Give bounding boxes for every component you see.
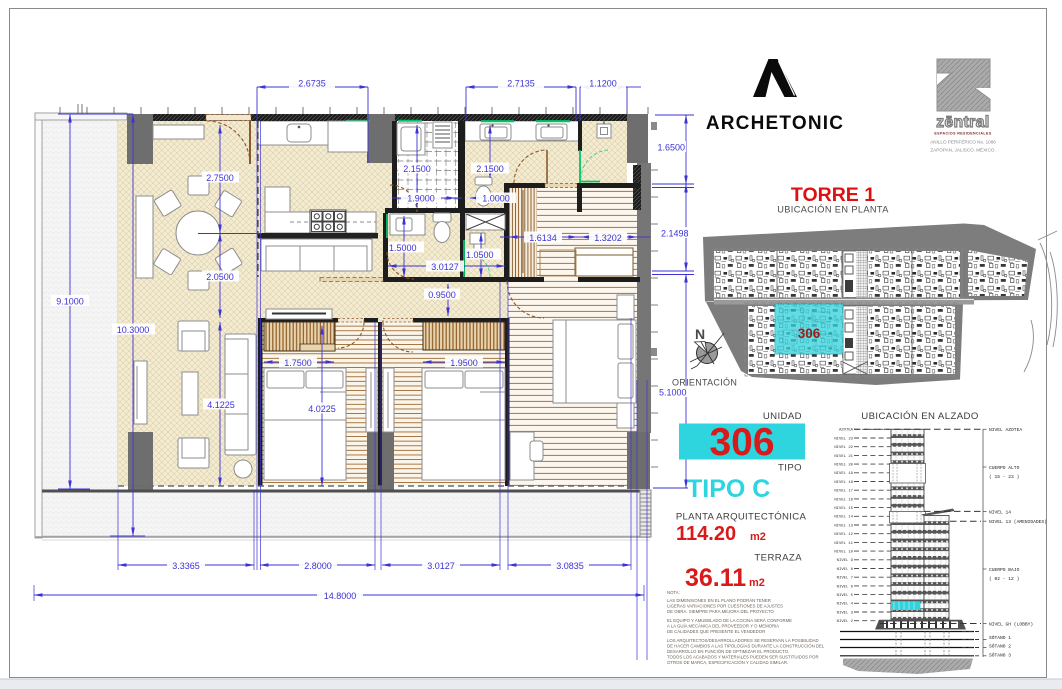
svg-text:LAS DIMENSIONES EN EL PLANO PO: LAS DIMENSIONES EN EL PLANO PODRÁN TENER — [667, 598, 771, 603]
svg-text:NOTA:: NOTA: — [667, 590, 680, 595]
svg-text:1.9000: 1.9000 — [407, 194, 435, 204]
svg-text:AZOTEA: AZOTEA — [839, 429, 854, 433]
svg-text:NIVEL 12: NIVEL 12 — [834, 533, 853, 537]
svg-text:CUERPO BAJO: CUERPO BAJO — [989, 567, 1020, 573]
svg-text:2.1498: 2.1498 — [661, 229, 689, 239]
svg-text:2.1500: 2.1500 — [476, 164, 504, 174]
svg-text:UBICACIÓN EN PLANTA: UBICACIÓN EN PLANTA — [777, 205, 889, 215]
svg-text:NIVEL GH (LOBBY): NIVEL GH (LOBBY) — [989, 622, 1033, 628]
svg-text:2.0500: 2.0500 — [206, 272, 234, 282]
svg-text:m2: m2 — [749, 577, 765, 589]
svg-text:306: 306 — [709, 421, 774, 464]
svg-text:306: 306 — [798, 326, 821, 341]
svg-text:NIVEL 6: NIVEL 6 — [837, 585, 854, 589]
svg-text:DE HACER CAMBIOS A LAS TIPOLOG: DE HACER CAMBIOS A LAS TIPOLOGÍAS DURANT… — [667, 644, 825, 649]
svg-text:2.1500: 2.1500 — [403, 164, 431, 174]
svg-text:TERRAZA: TERRAZA — [754, 553, 802, 564]
svg-text:NIVEL 13 (AMENIDADES): NIVEL 13 (AMENIDADES) — [989, 519, 1047, 525]
svg-text:OTROS DE MARCA, ESPECIFICACIÓN: OTROS DE MARCA, ESPECIFICACIÓN Y CALIDAD… — [667, 660, 788, 665]
svg-text:3.3365: 3.3365 — [172, 561, 200, 571]
svg-text:NIVEL 16: NIVEL 16 — [834, 498, 853, 502]
svg-text:2.8000: 2.8000 — [304, 561, 332, 571]
svg-text:NIVEL 9: NIVEL 9 — [837, 559, 854, 563]
svg-text:N: N — [695, 326, 705, 342]
svg-text:( 02 - 12 ): ( 02 - 12 ) — [989, 576, 1019, 582]
svg-text:NIVEL 18: NIVEL 18 — [834, 481, 853, 485]
svg-text:NIVEL 5: NIVEL 5 — [837, 594, 854, 598]
svg-text:NIVEL 13: NIVEL 13 — [834, 524, 853, 528]
svg-text:NIVEL 11: NIVEL 11 — [834, 542, 853, 546]
svg-text:NIVEL AZOTEA: NIVEL AZOTEA — [989, 427, 1022, 433]
svg-text:1.6500: 1.6500 — [657, 143, 685, 153]
svg-text:NIVEL 22: NIVEL 22 — [834, 446, 853, 450]
svg-text:ANILLO PERIFÉRICO No. 1086: ANILLO PERIFÉRICO No. 1086 — [930, 139, 996, 145]
svg-text:5.1000: 5.1000 — [659, 388, 687, 398]
svg-text:3.0835: 3.0835 — [556, 561, 584, 571]
svg-text:4.1225: 4.1225 — [207, 400, 235, 410]
svg-text:3.0127: 3.0127 — [427, 561, 455, 571]
svg-text:zēntral: zēntral — [936, 114, 989, 131]
svg-text:DE CALIDADES QUE PRESENTE EL V: DE CALIDADES QUE PRESENTE EL VENDEDOR — [667, 629, 765, 634]
svg-text:NIVEL 4: NIVEL 4 — [837, 603, 854, 607]
svg-text:NIVEL 2: NIVEL 2 — [837, 620, 854, 624]
svg-text:LOS ARQUITECTOS/DESARROLLADORE: LOS ARQUITECTOS/DESARROLLADORES SE RESER… — [667, 638, 819, 643]
svg-text:NIVEL 21: NIVEL 21 — [834, 455, 853, 459]
svg-text:DE OBRA. SIEMPRE PARA MEJORA D: DE OBRA. SIEMPRE PARA MEJORA DEL PROYECT… — [667, 609, 775, 614]
svg-text:2.7135: 2.7135 — [507, 79, 535, 89]
svg-text:2.7500: 2.7500 — [206, 173, 234, 183]
svg-text:2.6735: 2.6735 — [298, 79, 326, 89]
svg-text:1.0500: 1.0500 — [466, 250, 494, 260]
svg-text:4.0225: 4.0225 — [308, 404, 336, 414]
svg-text:SÓTANO 1: SÓTANO 1 — [989, 634, 1011, 641]
svg-text:TODOS LOS ACABADOS Y MATERIALE: TODOS LOS ACABADOS Y MATERIALES PUEDEN S… — [667, 655, 819, 660]
svg-text:NIVEL 19: NIVEL 19 — [834, 472, 853, 476]
svg-text:NIVEL 10: NIVEL 10 — [834, 551, 853, 555]
svg-text:NIVEL 8: NIVEL 8 — [837, 568, 854, 572]
svg-text:1.0000: 1.0000 — [482, 194, 510, 204]
svg-text:ORIENTACIÓN: ORIENTACIÓN — [672, 378, 737, 388]
svg-text:10.3000: 10.3000 — [117, 325, 150, 335]
svg-text:36.11: 36.11 — [685, 564, 746, 592]
svg-text:LIGERAS VARIACIONES POR CUESTI: LIGERAS VARIACIONES POR CUESTIONES DE AJ… — [667, 604, 783, 609]
svg-text:ARCHETONIC: ARCHETONIC — [706, 113, 844, 134]
svg-text:SÓTANO 3: SÓTANO 3 — [989, 652, 1011, 659]
svg-text:9.1000: 9.1000 — [56, 297, 84, 307]
svg-text:NIVEL 15: NIVEL 15 — [834, 507, 853, 511]
svg-text:ESPACIOS RESIDENCIALES: ESPACIOS RESIDENCIALES — [934, 132, 991, 136]
svg-text:TORRE 1: TORRE 1 — [791, 184, 875, 206]
svg-text:1.7500: 1.7500 — [284, 358, 312, 368]
svg-text:A LA GUÍA MECÁNICA DEL PROVEED: A LA GUÍA MECÁNICA DEL PROVEEDOR Y O MEM… — [667, 624, 779, 629]
svg-text:0.9500: 0.9500 — [428, 290, 456, 300]
svg-text:NIVEL 3: NIVEL 3 — [837, 611, 854, 615]
svg-text:1.5000: 1.5000 — [389, 243, 417, 253]
svg-text:( 15 - 23 ): ( 15 - 23 ) — [989, 474, 1019, 480]
svg-text:DESARROLLO EN FUNCIÓN DE OPTIM: DESARROLLO EN FUNCIÓN DE OPTIMIZAR EL PR… — [667, 649, 789, 654]
svg-text:NIVEL 14: NIVEL 14 — [989, 509, 1011, 515]
svg-text:NIVEL 7: NIVEL 7 — [837, 577, 854, 581]
svg-text:3.0127: 3.0127 — [431, 262, 459, 272]
svg-text:1.1200: 1.1200 — [589, 79, 617, 89]
svg-text:TIPO: TIPO — [778, 463, 802, 474]
svg-text:114.20: 114.20 — [676, 523, 736, 545]
svg-text:PLANTA ARQUITECTÓNICA: PLANTA ARQUITECTÓNICA — [676, 512, 807, 523]
svg-text:NIVEL 14: NIVEL 14 — [834, 516, 853, 520]
svg-text:TIPO C: TIPO C — [687, 475, 770, 503]
svg-text:m2: m2 — [750, 531, 766, 543]
svg-text:NIVEL 17: NIVEL 17 — [834, 490, 853, 494]
svg-text:CUERPO ALTO: CUERPO ALTO — [989, 465, 1020, 471]
svg-text:1.6134: 1.6134 — [529, 233, 557, 243]
svg-text:UBICACIÓN EN ALZADO: UBICACIÓN EN ALZADO — [861, 411, 978, 422]
svg-text:NIVEL 20: NIVEL 20 — [834, 464, 853, 468]
svg-text:1.3202: 1.3202 — [594, 233, 622, 243]
svg-text:ZAPOPAN, JALISCO. MÉXICO.: ZAPOPAN, JALISCO. MÉXICO. — [930, 147, 995, 153]
svg-text:NIVEL 23: NIVEL 23 — [834, 437, 853, 441]
svg-text:1.9500: 1.9500 — [450, 358, 478, 368]
svg-text:EL EQUIPO Y AMUEBLADO DE LA CO: EL EQUIPO Y AMUEBLADO DE LA COCINA SERÁ … — [667, 618, 792, 623]
svg-text:SÓTANO 2: SÓTANO 2 — [989, 643, 1011, 650]
svg-text:14.8000: 14.8000 — [324, 591, 357, 601]
